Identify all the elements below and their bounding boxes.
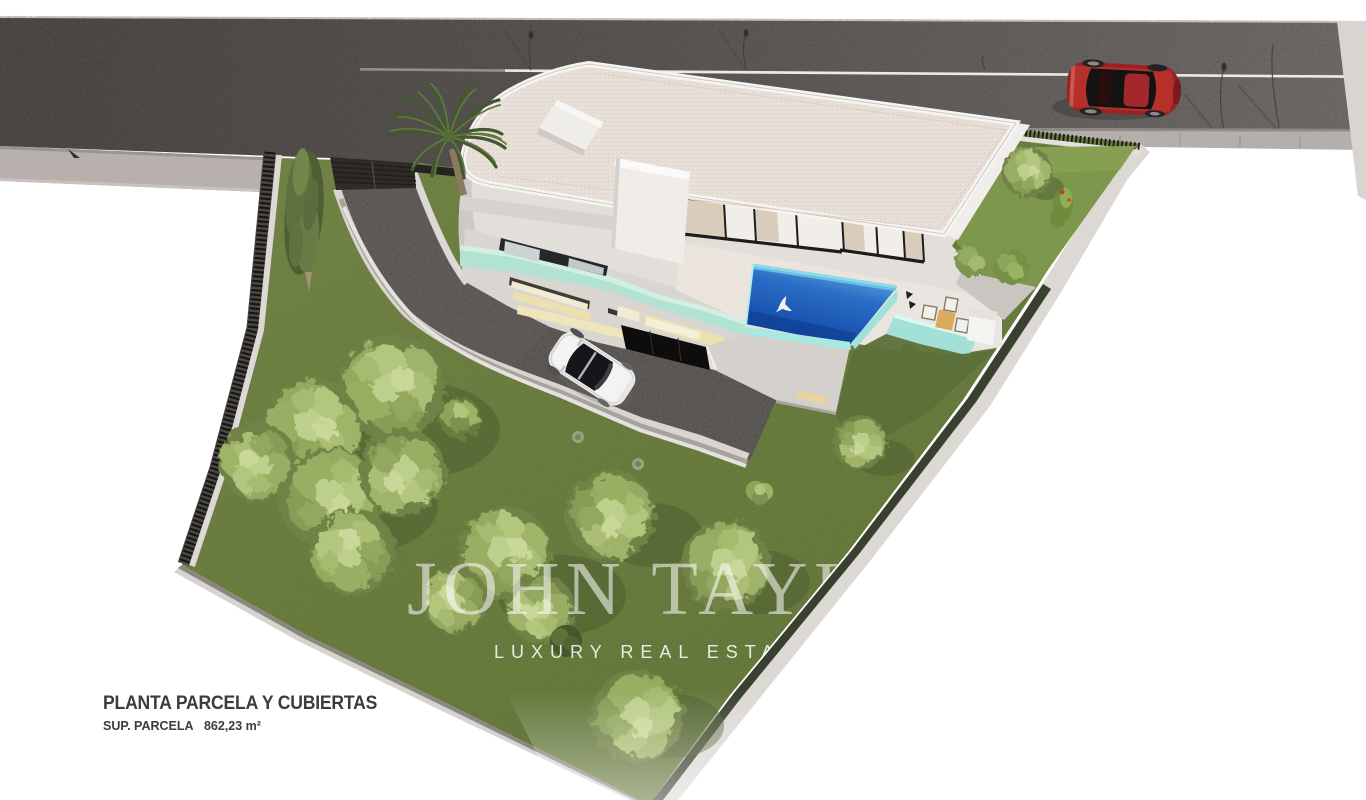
svg-text:JOHN TAYLOR: JOHN TAYLOR bbox=[407, 547, 986, 631]
svg-text:LUXURY REAL ESTATE SPEC: LUXURY REAL ESTATE SPEC bbox=[494, 642, 905, 662]
